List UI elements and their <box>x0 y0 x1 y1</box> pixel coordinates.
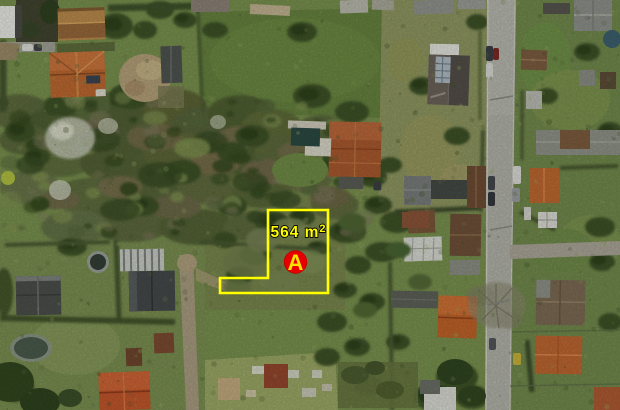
svg-text:564 m2: 564 m2 <box>270 223 326 241</box>
svg-text:A: A <box>288 250 304 275</box>
